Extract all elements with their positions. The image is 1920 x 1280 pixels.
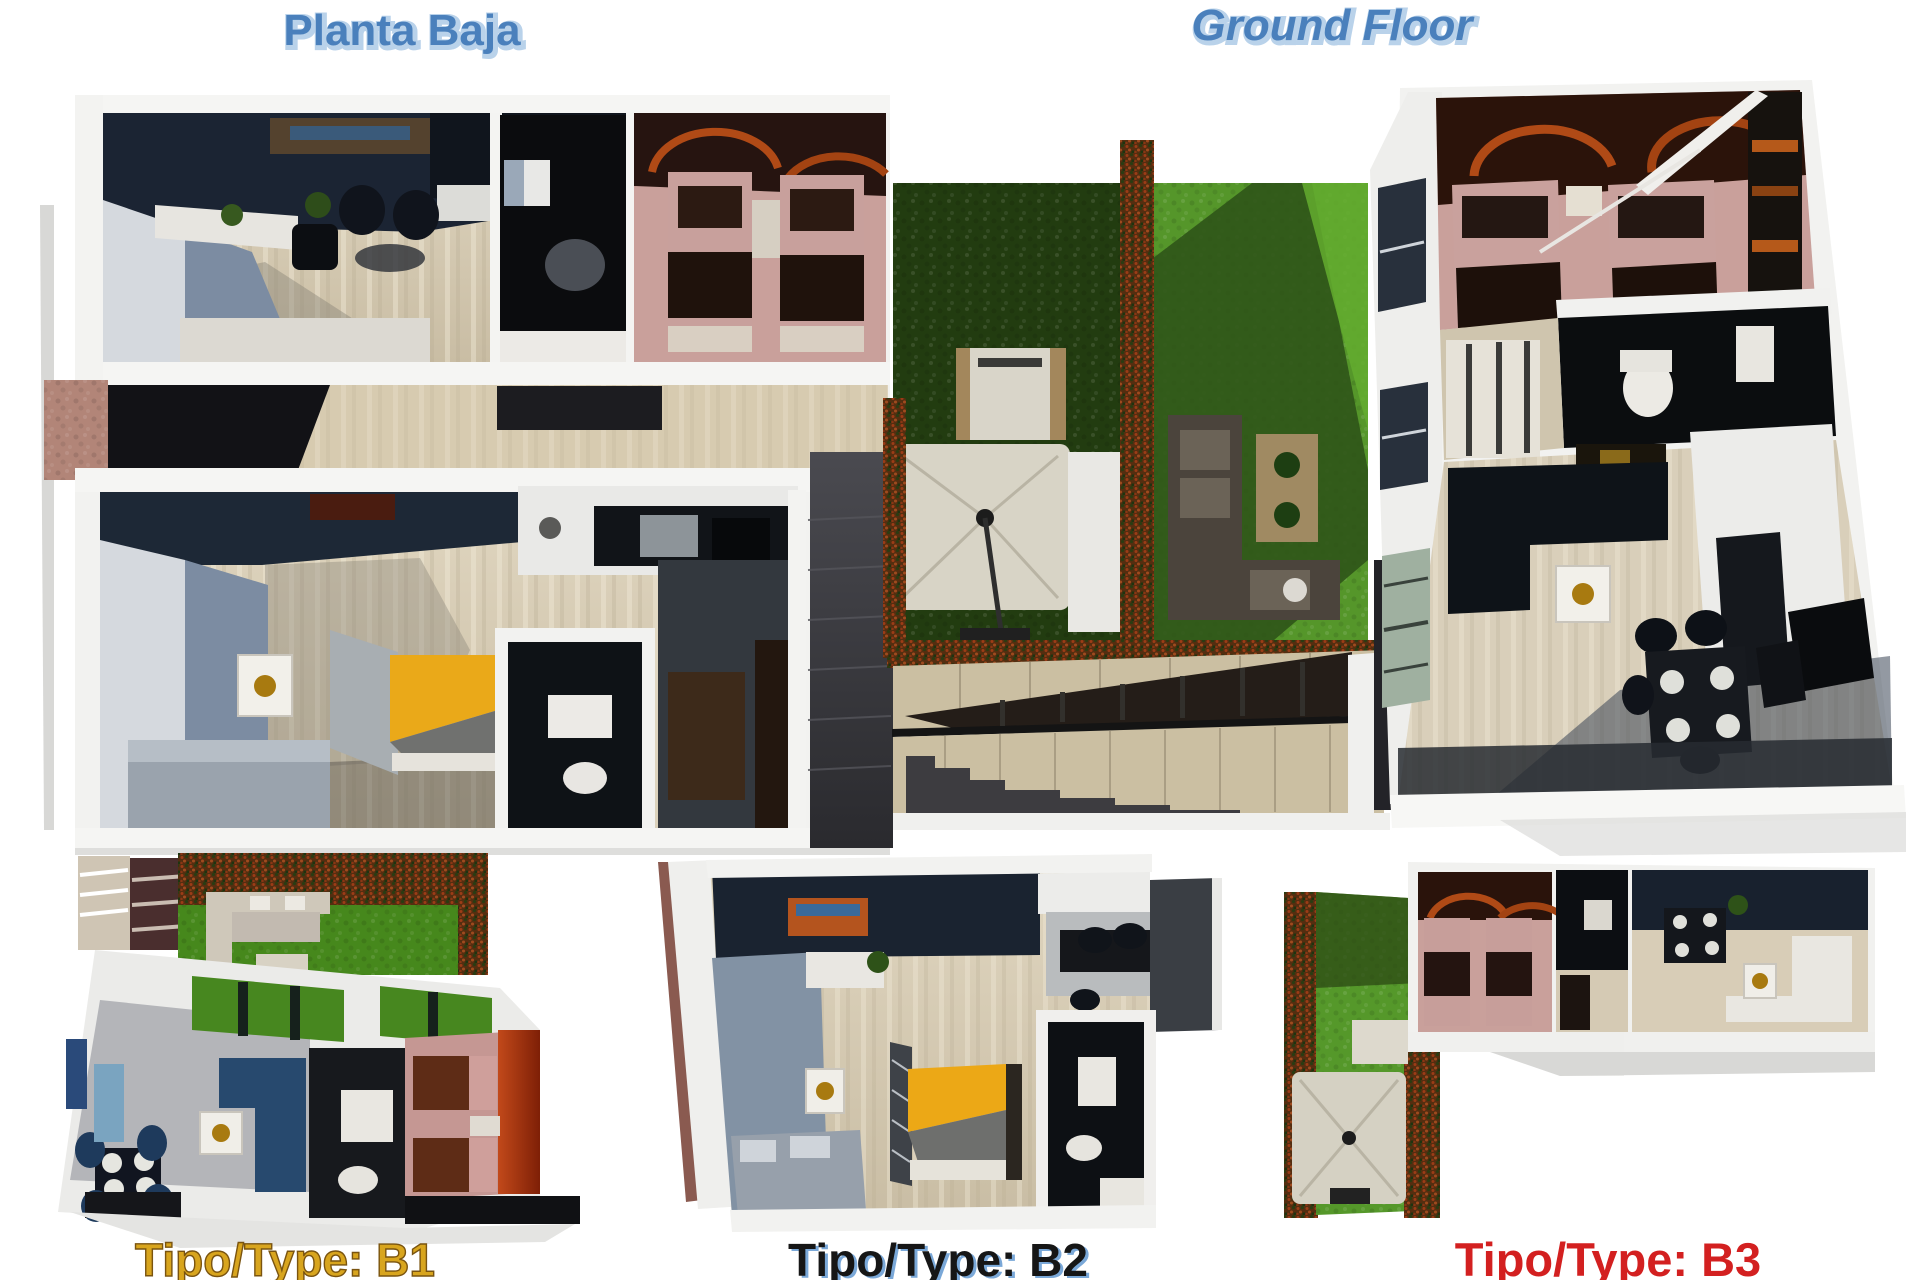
svg-text:Tipo/Type: B3: Tipo/Type: B3 <box>1455 1233 1761 1280</box>
svg-text:Tipo/Type: B1: Tipo/Type: B1 <box>135 1234 435 1280</box>
svg-text:Planta Baja: Planta Baja <box>283 6 521 55</box>
svg-text:Tipo/Type: B2: Tipo/Type: B2 <box>788 1234 1088 1280</box>
svg-text:Ground Floor: Ground Floor <box>1191 1 1475 50</box>
